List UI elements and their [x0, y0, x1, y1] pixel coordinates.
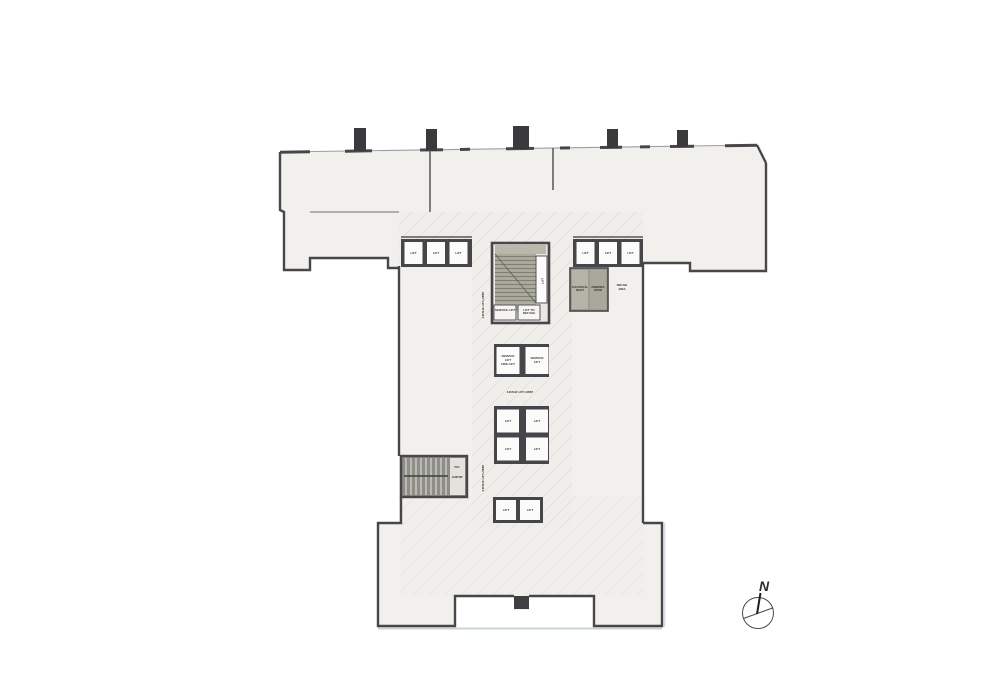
svg-text:LIFT: LIFT	[534, 419, 540, 423]
svg-text:REFUGE: REFUGE	[617, 284, 628, 287]
svg-text:LIFT: LIFT	[503, 508, 509, 512]
svg-text:LIFT: LIFT	[505, 419, 511, 423]
svg-text:LIFT: LIFT	[410, 251, 416, 255]
svg-text:LIFT: LIFT	[455, 251, 461, 255]
svg-text:PAC: PAC	[454, 466, 459, 469]
svg-text:LIFT: LIFT	[627, 251, 633, 255]
svg-text:JANITOR: JANITOR	[452, 476, 463, 479]
svg-text:AREA: AREA	[618, 288, 625, 291]
svg-text:SHAFT: SHAFT	[576, 289, 585, 292]
svg-text:LIFT: LIFT	[534, 360, 540, 364]
svg-text:FIRE LIFT: FIRE LIFT	[501, 362, 515, 366]
svg-text:LIFT: LIFT	[505, 447, 511, 451]
svg-text:ROOM: ROOM	[594, 289, 602, 292]
svg-text:SERVICE LIFT: SERVICE LIFT	[495, 308, 515, 312]
svg-text:LIFT: LIFT	[541, 278, 545, 284]
svg-text:N: N	[759, 578, 770, 594]
svg-text:LIFT: LIFT	[605, 251, 611, 255]
svg-text:LIFT: LIFT	[527, 508, 533, 512]
svg-text:2.98 M.W. LIFT LOBBY: 2.98 M.W. LIFT LOBBY	[482, 464, 485, 491]
svg-text:2.98 M.W. LIFT LOBBY: 2.98 M.W. LIFT LOBBY	[482, 291, 485, 318]
svg-text:REFUGE: REFUGE	[523, 311, 536, 315]
svg-text:2.98 M.W. LIFT LOBBY: 2.98 M.W. LIFT LOBBY	[507, 391, 534, 394]
svg-text:LIFT: LIFT	[534, 447, 540, 451]
svg-text:LIFT: LIFT	[433, 251, 439, 255]
svg-text:LIFT: LIFT	[582, 251, 588, 255]
